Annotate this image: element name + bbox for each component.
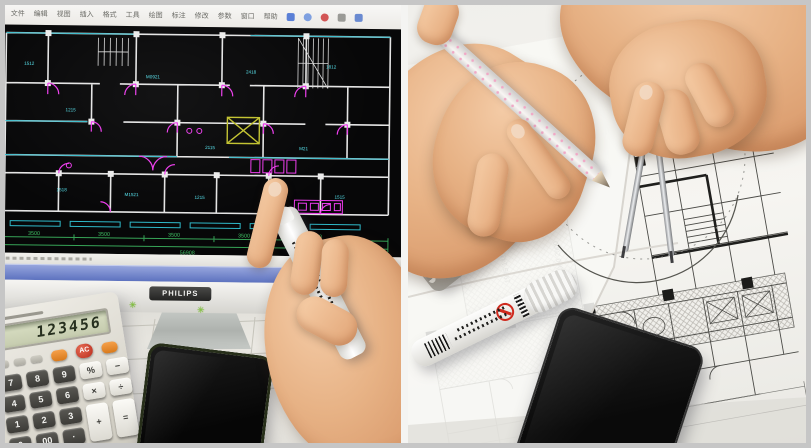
menu-item: 帮助 bbox=[264, 12, 278, 22]
calculator-memory-key bbox=[101, 340, 118, 353]
dim-label: 3500 bbox=[238, 233, 250, 239]
cad-floor-plan: 1512 M0921 1215 2418 1812 2115 1518 M152… bbox=[5, 25, 397, 258]
fingernail bbox=[267, 180, 283, 198]
calculator-small-key bbox=[30, 354, 43, 363]
cad-screen: 1512 M0921 1215 2418 1812 2115 1518 M152… bbox=[5, 25, 401, 258]
menu-item: 插入 bbox=[80, 9, 94, 19]
menu-item: 修改 bbox=[195, 11, 209, 21]
plan-teal-band bbox=[10, 221, 360, 230]
right-photo-blueprint-drafting: 9000 30700 2400 1935 1410 2000 2000 0 1 … bbox=[408, 5, 806, 443]
dim-label: 3500 bbox=[28, 231, 40, 237]
menu-item: 窗口 bbox=[241, 11, 255, 21]
menu-item: 参数 bbox=[218, 11, 232, 21]
menu-item: 标注 bbox=[172, 11, 186, 21]
room-label: M0921 bbox=[146, 74, 161, 79]
fingernail bbox=[638, 83, 654, 101]
calculator-display-value: 123456 bbox=[36, 313, 102, 342]
calculator-key: 4 bbox=[5, 394, 26, 413]
plan-columns bbox=[44, 30, 352, 180]
calculator-key: 7 bbox=[5, 373, 23, 392]
calculator-key: + bbox=[85, 402, 113, 442]
room-label: M1521 bbox=[124, 192, 139, 197]
toolbar-print-icon bbox=[287, 13, 295, 21]
menu-item: 格式 bbox=[103, 10, 117, 20]
room-label: 1215 bbox=[66, 107, 77, 112]
calculator-key: · bbox=[62, 427, 86, 443]
plan-elevator bbox=[227, 117, 259, 143]
plan-cyan-walls bbox=[5, 33, 390, 160]
room-label: 1518 bbox=[57, 187, 68, 192]
plan-stairs bbox=[98, 36, 329, 89]
calculator-key: 6 bbox=[55, 385, 79, 404]
room-label: 2418 bbox=[246, 70, 257, 75]
room-label: 1515 bbox=[334, 195, 345, 200]
calculator-key: % bbox=[79, 361, 103, 380]
fingernail bbox=[508, 121, 527, 141]
room-label: M21 bbox=[299, 146, 308, 151]
monitor-brand-badge: PHILIPS bbox=[149, 286, 211, 301]
photo-collage: 文件 编辑 视图 插入 格式 工具 绘图 标注 修改 参数 窗口 帮助 bbox=[5, 5, 806, 443]
calculator-small-key bbox=[5, 359, 9, 368]
plan-walls bbox=[5, 33, 390, 216]
calculator-key: 0 bbox=[9, 435, 33, 443]
toolbar-info-icon bbox=[338, 14, 346, 22]
dim-label: 3500 bbox=[168, 233, 180, 239]
plan-fixtures bbox=[66, 127, 343, 214]
menu-item: 绘图 bbox=[149, 10, 163, 20]
calculator-memory-key bbox=[51, 348, 68, 361]
calculator-key: 5 bbox=[29, 390, 53, 409]
room-label: 1215 bbox=[194, 195, 205, 200]
toolbar-palette-icon bbox=[321, 13, 329, 21]
menu-item: 工具 bbox=[126, 10, 140, 20]
calculator-key: 3 bbox=[59, 406, 83, 425]
calculator-key: 8 bbox=[25, 369, 49, 388]
calculator-key: − bbox=[105, 356, 129, 375]
room-label: 1812 bbox=[326, 64, 337, 69]
menu-item: 文件 bbox=[11, 9, 25, 19]
smartphone bbox=[134, 342, 275, 443]
calculator-key: 1 bbox=[5, 415, 29, 434]
plan-doors bbox=[46, 83, 348, 215]
calculator-key: ÷ bbox=[109, 377, 133, 396]
calculator-key: 9 bbox=[52, 365, 76, 384]
calculator-key: × bbox=[82, 381, 106, 400]
menu-item: 视图 bbox=[57, 9, 71, 19]
plan-room-labels: 1512 M0921 1215 2418 1812 2115 1518 M152… bbox=[22, 61, 346, 202]
marker-barcode bbox=[424, 333, 453, 358]
collage-divider bbox=[401, 5, 408, 443]
calculator-small-key bbox=[13, 357, 26, 366]
menu-item: 编辑 bbox=[34, 9, 48, 19]
room-label: 2115 bbox=[205, 145, 215, 150]
calculator-ac-key: AC bbox=[75, 343, 94, 360]
photo-frame: 文件 编辑 视图 插入 格式 工具 绘图 标注 修改 参数 窗口 帮助 bbox=[0, 0, 811, 448]
green-asterisk-decor: ✳ bbox=[129, 300, 137, 311]
toolbar-undo-icon bbox=[304, 13, 312, 21]
calculator-keypad: 7 8 9 % − 4 5 6 × ÷ 1 2 3 + = 0 00 · bbox=[5, 358, 132, 443]
green-asterisk-decor: ✳ bbox=[197, 305, 205, 316]
hand-finger bbox=[320, 238, 350, 297]
calculator-key: 2 bbox=[32, 410, 56, 429]
calculator-key: 00 bbox=[35, 431, 59, 443]
toolbar-help-icon bbox=[355, 14, 363, 22]
command-text-blur bbox=[6, 257, 92, 261]
room-label: 1512 bbox=[24, 61, 35, 66]
dim-label: 3500 bbox=[98, 232, 110, 238]
left-photo-cad-monitor: 文件 编辑 视图 插入 格式 工具 绘图 标注 修改 参数 窗口 帮助 bbox=[5, 5, 401, 443]
